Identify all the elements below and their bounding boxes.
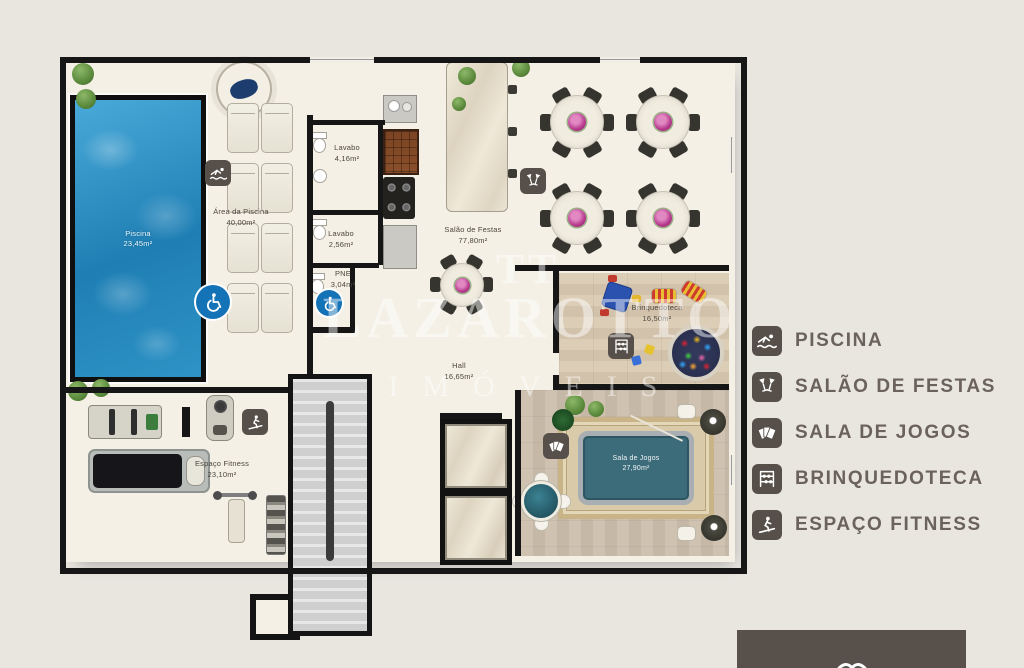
sunbed: [261, 103, 293, 153]
wheelchair-accessible-icon: [316, 290, 342, 316]
flower-centerpiece: [654, 209, 672, 227]
room-name: Lavabo: [318, 143, 376, 154]
armchair: [678, 527, 695, 540]
room-label-hall: Hall 16,65m²: [428, 361, 490, 382]
plant-icon: [458, 67, 476, 85]
wall: [515, 390, 521, 556]
dumbbell-rack: [266, 495, 286, 555]
window: [310, 57, 374, 63]
playing-cards-icon: [752, 418, 782, 448]
room-name: Espaço Fitness: [176, 459, 268, 470]
room-area: 3,04m²: [318, 280, 368, 291]
kids-chair: [600, 309, 609, 316]
room-area: 77,80m²: [428, 236, 518, 247]
kids-lounge-chair: [652, 289, 676, 303]
room-name: Sala de Jogos: [583, 454, 689, 464]
stool: [508, 85, 517, 94]
wall: [307, 327, 355, 333]
stove: [383, 177, 415, 219]
dining-table: [630, 89, 696, 155]
kids-chair: [608, 275, 617, 282]
room-area: 4,16m²: [318, 154, 376, 165]
room-area: 40,00m²: [210, 218, 272, 229]
legend-label: ESPAÇO FITNESS: [795, 514, 982, 536]
treadmill-runner-icon: [242, 409, 268, 435]
abacus-toy-icon: [752, 464, 782, 494]
dining-table: [434, 257, 490, 313]
plant-icon: [588, 401, 604, 417]
billiard-table: Sala de Jogos 27,90m²: [578, 431, 694, 505]
plant-icon: [72, 63, 94, 85]
wall: [553, 267, 559, 353]
legend-item-sala-de-jogos: SALA DE JOGOS: [752, 418, 996, 448]
dining-table: [630, 185, 696, 251]
balcony-door: [729, 455, 735, 485]
pillar: [182, 407, 190, 437]
swimming-pool: Piscina 23,45m²: [70, 95, 206, 382]
room-name: Piscina: [103, 229, 173, 240]
treadmill-runner-icon: [752, 510, 782, 540]
wall: [307, 120, 385, 125]
legend-item-brinquedoteca: BRINQUEDOTECA: [752, 464, 996, 494]
room-label-brinquedoteca: Brinquedoteca 16,50m²: [620, 303, 694, 324]
sunbed: [261, 283, 293, 333]
flower-centerpiece: [568, 209, 586, 227]
flower-centerpiece: [568, 113, 586, 131]
sunbed: [227, 283, 259, 333]
pouf: [700, 409, 726, 435]
wall: [553, 384, 729, 390]
elevator: [440, 491, 512, 565]
cheers-glasses-icon: [520, 168, 546, 194]
plant-icon: [512, 59, 530, 77]
cheers-glasses-icon: [752, 372, 782, 402]
sink: [313, 169, 327, 183]
room-label-lavabo-1: Lavabo 4,16m²: [318, 143, 376, 164]
brand-logo-icon: [830, 654, 874, 668]
sunbed: [261, 223, 293, 273]
sunbed: [227, 103, 259, 153]
multi-gym-machine: [88, 405, 162, 439]
legend-item-salao-de-festas: SALÃO DE FESTAS: [752, 372, 996, 402]
playing-cards-icon: [543, 433, 569, 459]
wall: [378, 120, 383, 265]
legend-label: BRINQUEDOTECA: [795, 468, 984, 490]
stair-handrail: [326, 401, 334, 561]
room-area: 16,50m²: [620, 314, 694, 325]
stairwell: [288, 374, 372, 636]
floor-plan-page: Piscina 23,45m² Área da Piscina 40,00m²: [0, 0, 1024, 668]
wall: [60, 387, 313, 393]
bar-cabinet: [383, 129, 419, 175]
flower-centerpiece: [654, 113, 672, 131]
stool: [508, 127, 517, 136]
legend-label: SALÃO DE FESTAS: [795, 376, 996, 398]
room-label-pne: PNE 3,04m²: [318, 269, 368, 290]
sunbed: [261, 163, 293, 213]
room-area: 23,10m²: [176, 470, 268, 481]
legend-item-piscina: PISCINA: [752, 326, 996, 356]
room-name: Brinquedoteca: [620, 303, 694, 314]
wall: [307, 263, 379, 268]
room-area: 27,90m²: [583, 464, 689, 474]
room-area: 2,56m²: [310, 240, 372, 251]
room-name: Área da Piscina: [210, 207, 272, 218]
ball-pit: [668, 325, 724, 381]
pouf: [701, 515, 727, 541]
exercise-bike: [206, 395, 234, 441]
room-area: 16,65m²: [428, 372, 490, 383]
window: [600, 57, 640, 63]
wheelchair-accessible-icon: [196, 285, 230, 319]
dining-table: [544, 185, 610, 251]
legend: PISCINA SALÃO DE FESTAS: [752, 326, 996, 540]
party-hall-counter: [446, 62, 508, 212]
swimmer-icon: [752, 326, 782, 356]
abacus-toy-icon: [608, 333, 634, 359]
room-area: 23,45m²: [103, 239, 173, 250]
legend-item-espaco-fitness: ESPAÇO FITNESS: [752, 510, 996, 540]
elevator: [440, 419, 512, 493]
sunbed: [227, 223, 259, 273]
swimmer-icon: [205, 160, 231, 186]
sunbed: [227, 163, 259, 213]
kitchen-sink-counter: [383, 95, 417, 123]
room-label-salao-de-festas: Salão de Festas 77,80m²: [428, 225, 518, 246]
stool: [508, 169, 517, 178]
room-name: Salão de Festas: [428, 225, 518, 236]
flower-centerpiece: [455, 278, 470, 293]
room-label-espaco-fitness: Espaço Fitness 23,10m²: [176, 459, 268, 480]
room-label-sala-de-jogos: Sala de Jogos 27,90m²: [583, 454, 689, 474]
kids-chair: [632, 295, 641, 302]
room-label-lavabo-2: Lavabo 2,56m²: [310, 229, 372, 250]
plant-icon: [76, 89, 96, 109]
wall: [515, 265, 729, 271]
room-name: Lavabo: [310, 229, 372, 240]
room-label-area-da-piscina: Área da Piscina 40,00m²: [210, 207, 272, 228]
legend-label: PISCINA: [795, 330, 883, 352]
wall: [307, 115, 313, 392]
kitchen-counter: [383, 225, 417, 269]
floor-plan: Piscina 23,45m² Área da Piscina 40,00m²: [60, 57, 735, 562]
balcony-door: [729, 137, 735, 173]
brand-logo-box: [737, 630, 966, 668]
wall: [307, 210, 379, 215]
room-label-piscina: Piscina 23,45m²: [103, 229, 173, 250]
armchair: [678, 405, 695, 418]
plant-icon: [552, 409, 574, 431]
room-name: PNE: [318, 269, 368, 280]
legend-label: SALA DE JOGOS: [795, 422, 971, 444]
card-table: [518, 478, 564, 524]
dining-table: [544, 89, 610, 155]
bench-press: [215, 487, 255, 543]
plant-icon: [452, 97, 466, 111]
room-name: Hall: [428, 361, 490, 372]
